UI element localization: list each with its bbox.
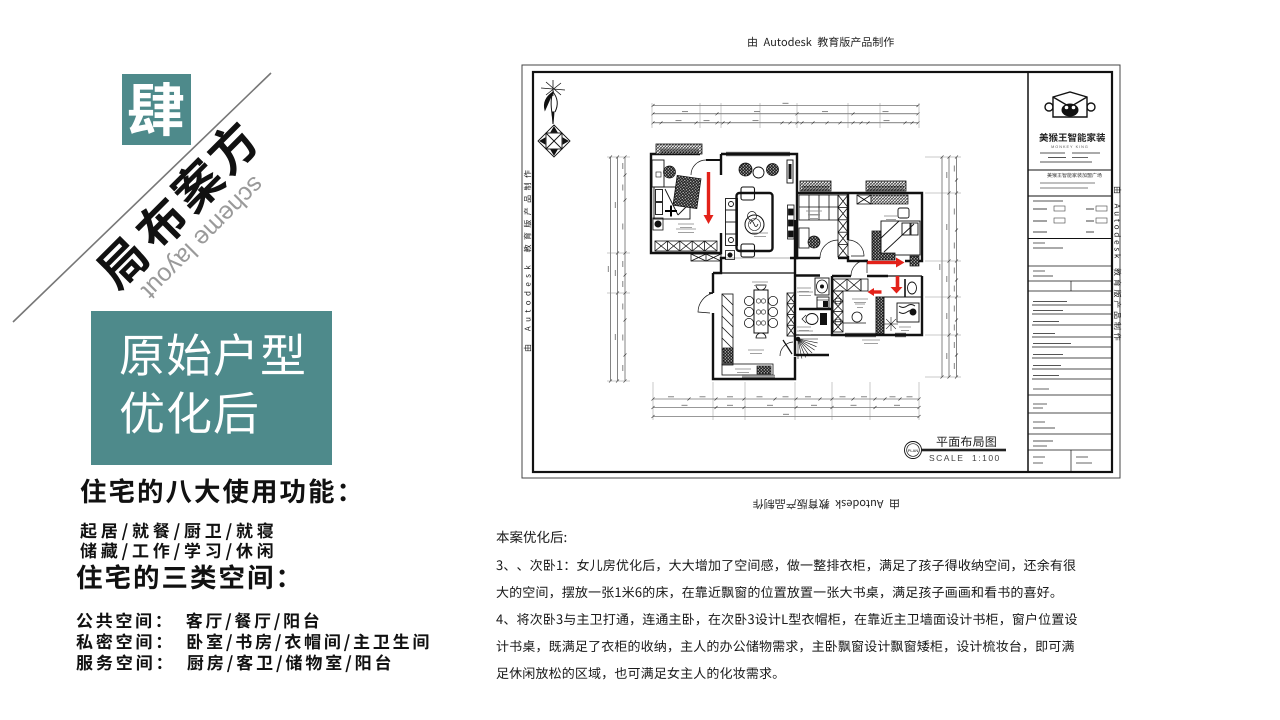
svg-text:SCALE: SCALE — [929, 453, 964, 463]
svg-text:PLAN: PLAN — [908, 448, 919, 453]
svg-text:MONKEY KING: MONKEY KING — [1051, 145, 1089, 149]
svg-text:1:100: 1:100 — [972, 453, 1001, 463]
